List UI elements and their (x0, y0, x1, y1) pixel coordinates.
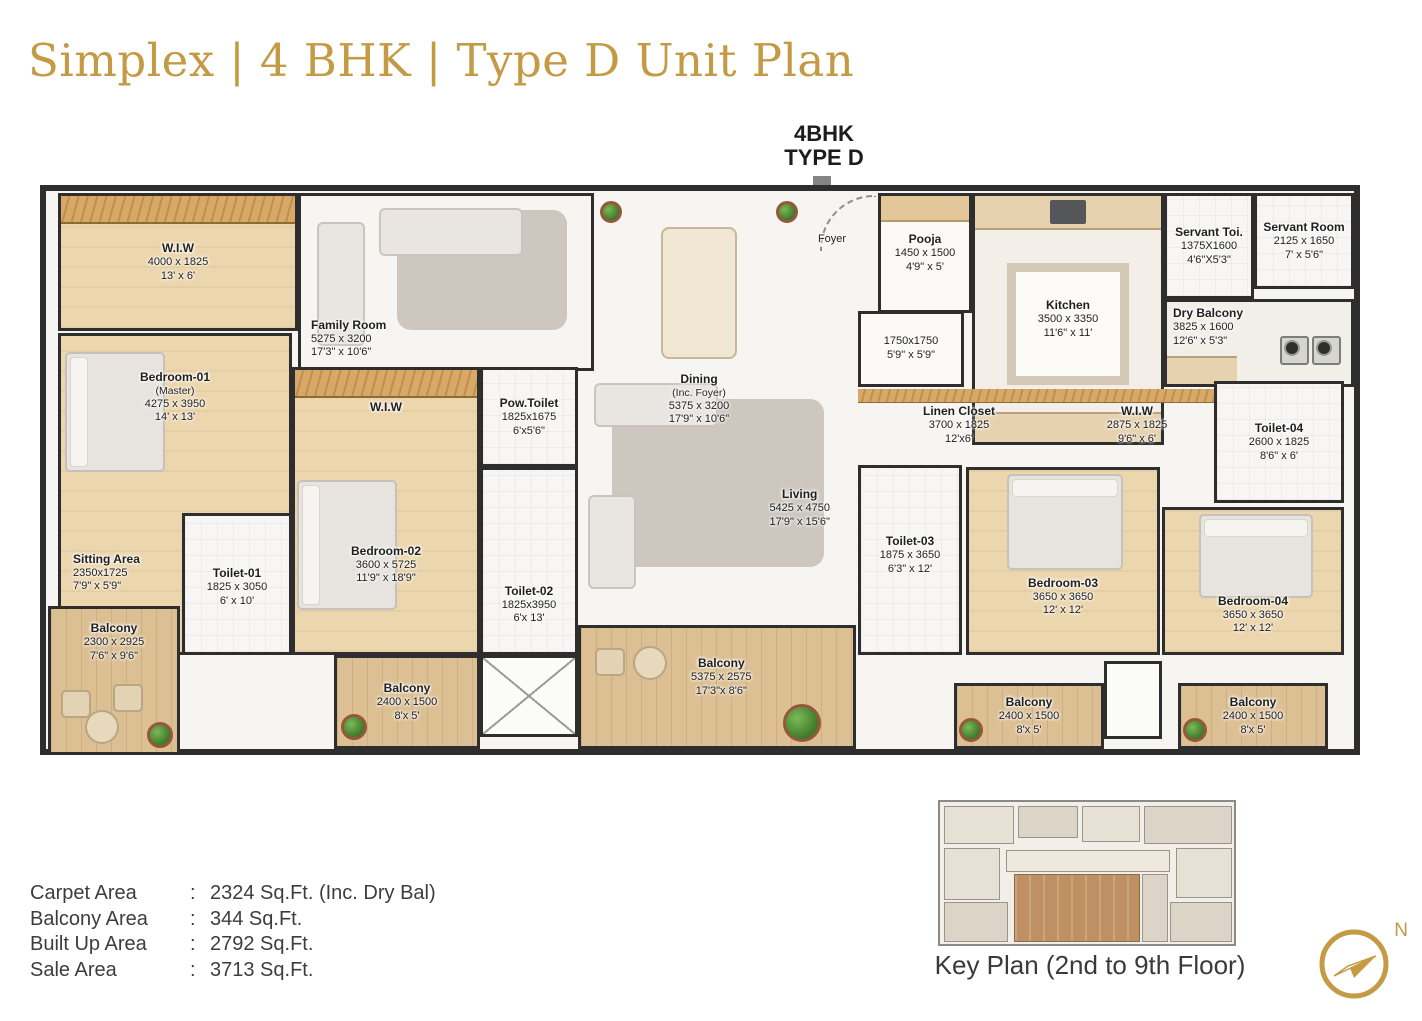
room-name: Dry Balcony (1173, 306, 1243, 321)
room-name: Bedroom-02 (351, 544, 421, 559)
room-name: Family Room (311, 318, 386, 333)
room-dim-mm: 2875 x 1825 (1107, 419, 1168, 433)
keyplan-section (1142, 874, 1168, 942)
room-dim-ft: 13' x 6' (161, 270, 195, 284)
room-foyer: Foyer (786, 193, 878, 287)
room-servant-toilet: Servant Toi. 1375X1600 4'6"X5'3" (1164, 193, 1254, 299)
plant-icon (783, 704, 821, 742)
room-dining: Dining (Inc. Foyer) 5375 x 3200 17'9" x … (594, 193, 804, 433)
keyplan-highlighted-unit (1014, 874, 1140, 942)
room-dim-ft: 12' x 12' (1043, 604, 1083, 618)
room-dim-ft: 17'9" x 10'6" (669, 413, 729, 427)
keyplan-corridor (1006, 850, 1170, 872)
room-dim-ft: 7'6" x 9'6" (90, 650, 138, 664)
room-name: Toilet-01 (213, 566, 261, 581)
room-dim-mm: 2400 x 1500 (999, 710, 1060, 724)
stove-icon (1050, 200, 1086, 224)
area-separator: : (190, 881, 210, 907)
room-dim-mm: 5275 x 3200 (311, 333, 372, 347)
room-bedroom-03: Bedroom-03 3650 x 3650 12' x 12' (966, 467, 1160, 655)
area-value: 2792 Sq.Ft. (210, 932, 313, 958)
room-balcony-master: Balcony 2300 x 2925 7'6" x 9'6" (48, 606, 180, 755)
sitting-area-label: Sitting Area 2350x1725 7'9" x 5'9" (73, 552, 140, 595)
area-wiw-right: W.I.W 2875 x 1825 9'6" x 6' (1060, 389, 1214, 461)
room-dim-mm: 3825 x 1600 (1173, 321, 1234, 335)
key-plan-thumbnail (938, 800, 1236, 946)
room-dim-ft: 5'9" x 5'9" (887, 349, 935, 363)
room-label: Servant Toi. 1375X1600 4'6"X5'3" (1175, 225, 1243, 268)
room-dim-mm: 5375 x 3200 (669, 400, 730, 414)
chair-icon (113, 684, 143, 712)
compass-north-label: N (1394, 920, 1408, 942)
area-linen-closet: Linen Closet 3700 x 1825 12'x6' (858, 389, 1060, 461)
keyplan-section (1176, 848, 1232, 898)
area-value: 3713 Sq.Ft. (210, 958, 313, 984)
keyplan-section (1144, 806, 1232, 844)
room-name: Balcony (91, 621, 138, 636)
room-dim-mm: 4275 x 3950 (145, 398, 206, 412)
room-name: Sitting Area (73, 552, 140, 567)
room-label: Toilet-01 1825 x 3050 6' x 10' (185, 566, 289, 609)
lift-shaft (1104, 661, 1162, 739)
unit-type-line1: 4BHK (742, 122, 906, 146)
room-name: Balcony (698, 656, 745, 671)
room-family: Family Room 5275 x 3200 17'3" x 10'6" (298, 193, 594, 371)
area-label: Balcony Area (30, 907, 190, 933)
room-label: Toilet-03 1875 x 3650 6'3" x 12' (861, 534, 959, 577)
room-name: Pooja (909, 232, 942, 247)
room-name: Bedroom-04 (1218, 594, 1288, 609)
area-row: Sale Area : 3713 Sq.Ft. (30, 958, 436, 984)
room-name: W.I.W (1121, 404, 1153, 419)
plant-icon (600, 201, 622, 223)
room-name: Pow.Toilet (500, 396, 559, 411)
room-dim-mm: 2300 x 2925 (84, 636, 145, 650)
room-label: Balcony 2300 x 2925 7'6" x 9'6" (51, 621, 177, 664)
floor-plan-page: Simplex | 4 BHK | Type D Unit Plan 4BHK … (0, 0, 1422, 1021)
room-name: Balcony (384, 681, 431, 696)
keyplan-section (1018, 806, 1078, 838)
area-label: Built Up Area (30, 932, 190, 958)
room-label: Servant Room 2125 x 1650 7' x 5'6" (1263, 220, 1344, 263)
room-name: W.I.W (370, 400, 402, 415)
room-balcony-2: Balcony 2400 x 1500 8'x 5' (334, 655, 480, 749)
dining-table-icon (661, 227, 737, 359)
table-icon (633, 646, 667, 680)
compass: N (1314, 920, 1414, 1010)
room-label: Living 5425 x 4750 17'9" x 15'6" (769, 487, 830, 530)
room-name: Toilet-04 (1255, 421, 1303, 436)
room-dim-ft: 12'x6' (945, 433, 973, 447)
plant-icon (776, 201, 798, 223)
room-name: Living (782, 487, 817, 502)
room-label: Foyer (818, 233, 846, 247)
keyplan-section (1170, 902, 1232, 942)
room-dim-ft: 8'6" x 6' (1260, 450, 1298, 464)
room-dim-mm: 2600 x 1825 (1249, 436, 1310, 450)
plant-icon (1183, 718, 1207, 742)
room-balcony-3: Balcony 2400 x 1500 8'x 5' (954, 683, 1104, 749)
room-name: Balcony (1230, 695, 1277, 710)
room-name: Linen Closet (923, 404, 995, 419)
room-pow-toilet: Pow.Toilet 1825x1675 6'x5'6" (480, 367, 578, 467)
room-label: Balcony 5375 x 2575 17'3"x 8'6" (691, 656, 752, 699)
room-dim-mm: 3500 x 3350 (1038, 313, 1099, 327)
room-name: Bedroom-01 (140, 370, 210, 385)
room-dim-ft: 12' x 12' (1233, 622, 1273, 636)
unit-floor-plan: W.I.W 4000 x 1825 13' x 6' Family Room 5… (40, 185, 1360, 755)
room-bedroom-04: Bedroom-04 3650 x 3650 12' x 12' (1162, 507, 1344, 655)
room-dim-mm: 5375 x 2575 (691, 671, 752, 685)
key-plan-caption: Key Plan (2nd to 9th Floor) (905, 950, 1275, 981)
room-label: Balcony 2400 x 1500 8'x 5' (999, 695, 1060, 738)
room-dim-ft: 17'3"x 8'6" (696, 685, 747, 699)
room-label: Linen Closet 3700 x 1825 12'x6' (923, 404, 995, 447)
room-label: Dining (Inc. Foyer) 5375 x 3200 17'9" x … (594, 372, 804, 427)
plant-icon (147, 722, 173, 748)
room-dim-mm: 1825 x 3050 (207, 581, 268, 595)
washing-machine-icon (1312, 336, 1341, 365)
keyplan-section (1082, 806, 1140, 842)
room-label: Dry Balcony 3825 x 1600 12'6" x 5'3" (1173, 306, 1243, 349)
room-name: Servant Room (1263, 220, 1344, 235)
bed-icon (1199, 514, 1313, 598)
room-dim-mm: 3700 x 1825 (929, 419, 990, 433)
room-wiw-master: W.I.W 4000 x 1825 13' x 6' (58, 193, 298, 331)
room-label: W.I.W 4000 x 1825 13' x 6' (148, 241, 209, 284)
room-toilet-03: Toilet-03 1875 x 3650 6'3" x 12' (858, 465, 962, 655)
room-dim-ft: 17'9" x 15'6" (770, 516, 830, 530)
room-name: Kitchen (1046, 298, 1090, 313)
room-label: Kitchen 3500 x 3350 11'6" x 11' (1038, 298, 1099, 341)
room-dim-mm: 3650 x 3650 (1033, 591, 1094, 605)
unit-type-callout: 4BHK TYPE D (742, 122, 906, 170)
room-toilet-04: Toilet-04 2600 x 1825 8'6" x 6' (1214, 381, 1344, 503)
room-dim-mm: 4000 x 1825 (148, 256, 209, 270)
room-name: Toilet-03 (886, 534, 934, 549)
room-dim-mm: 1450 x 1500 (895, 247, 956, 261)
room-label: Toilet-04 2600 x 1825 8'6" x 6' (1249, 421, 1310, 464)
unit-type-line2: TYPE D (742, 146, 906, 170)
room-label: Pow.Toilet 1825x1675 6'x5'6" (500, 396, 559, 439)
area-value: 344 Sq.Ft. (210, 907, 302, 933)
sofa-icon (588, 495, 636, 589)
room-name: Balcony (1006, 695, 1053, 710)
keyplan-section (944, 902, 1008, 942)
room-dim-ft: 6'3" x 12' (888, 563, 932, 577)
room-bedroom-02: W.I.W Bedroom-02 3600 x 5725 11'9" x 18'… (292, 367, 480, 655)
room-label: 1750x1750 5'9" x 5'9" (884, 335, 938, 363)
room-dim-ft: 6'x5'6" (513, 425, 545, 439)
room-utility-1750: 1750x1750 5'9" x 5'9" (858, 311, 964, 387)
room-dim-mm: 1825x3950 (502, 599, 556, 613)
area-row: Built Up Area : 2792 Sq.Ft. (30, 932, 436, 958)
room-name: Bedroom-03 (1028, 576, 1098, 591)
room-dry-balcony: Dry Balcony 3825 x 1600 12'6" x 5'3" (1164, 299, 1354, 387)
room-label: Toilet-02 1825x3950 6'x 13' (483, 584, 575, 627)
room-dim-mm: 3600 x 5725 (356, 559, 417, 573)
room-dim-mm: 2350x1725 (73, 567, 127, 581)
page-title: Simplex | 4 BHK | Type D Unit Plan (28, 34, 854, 87)
room-dim-ft: 8'x 5' (1017, 724, 1042, 738)
room-toilet-01: Toilet-01 1825 x 3050 6' x 10' (182, 513, 292, 655)
room-dim-ft: 4'6"X5'3" (1187, 254, 1231, 268)
area-separator: : (190, 907, 210, 933)
area-label: Carpet Area (30, 881, 190, 907)
room-label: W.I.W 2875 x 1825 9'6" x 6' (1107, 404, 1168, 447)
room-name: Servant Toi. (1175, 225, 1243, 240)
room-name: W.I.W (162, 241, 194, 256)
plant-icon (341, 714, 367, 740)
room-dim-mm: 1750x1750 (884, 335, 938, 349)
room-dim-mm: 2400 x 1500 (1223, 710, 1284, 724)
room-dim-ft: 6' x 10' (220, 595, 254, 609)
area-row: Carpet Area : 2324 Sq.Ft. (Inc. Dry Bal) (30, 881, 436, 907)
plant-icon (959, 718, 983, 742)
room-dim-ft: 4'9" x 5' (906, 261, 944, 275)
area-label: Sale Area (30, 958, 190, 984)
room-dim-mm: 2125 x 1650 (1274, 235, 1335, 249)
table-icon (85, 710, 119, 744)
room-balcony-4: Balcony 2400 x 1500 8'x 5' (1178, 683, 1328, 749)
room-dim-ft: 11'6" x 11' (1044, 327, 1093, 341)
room-label: Balcony 2400 x 1500 8'x 5' (377, 681, 438, 724)
area-separator: : (190, 932, 210, 958)
lift-shaft (480, 655, 578, 737)
keyplan-section (944, 806, 1014, 844)
room-label: Balcony 2400 x 1500 8'x 5' (1223, 695, 1284, 738)
room-subname: (Master) (155, 385, 194, 398)
washing-machine-icon (1280, 336, 1309, 365)
room-pooja: Pooja 1450 x 1500 4'9" x 5' (878, 193, 972, 313)
room-dim-mm: 1375X1600 (1181, 240, 1237, 254)
room-dim-ft: 12'6" x 5'3" (1173, 335, 1227, 349)
room-label: Pooja 1450 x 1500 4'9" x 5' (895, 232, 956, 275)
room-name: Foyer (818, 233, 846, 247)
room-dim-ft: 8'x 5' (395, 710, 420, 724)
room-label: Bedroom-01 (Master) 4275 x 3950 14' x 13… (140, 370, 210, 425)
room-dim-ft: 7'9" x 5'9" (73, 580, 121, 594)
room-dim-ft: 9'6" x 6' (1118, 433, 1156, 447)
area-separator: : (190, 958, 210, 984)
sofa-icon (379, 208, 523, 256)
room-label: Family Room 5275 x 3200 17'3" x 10'6" (311, 318, 386, 361)
wiw-label: W.I.W (370, 400, 402, 415)
room-label: Bedroom-02 3600 x 5725 11'9" x 18'9" (351, 544, 421, 587)
compass-icon (1314, 920, 1398, 1004)
room-servant-room: Servant Room 2125 x 1650 7' x 5'6" (1254, 193, 1354, 289)
room-name: Dining (680, 372, 717, 387)
room-dim-mm: 1825x1675 (502, 411, 556, 425)
room-dim-ft: 11'9" x 18'9" (356, 572, 416, 586)
keyplan-section (944, 848, 1000, 900)
room-balcony-center: Balcony 5375 x 2575 17'3"x 8'6" (578, 625, 856, 749)
room-name: Toilet-02 (505, 584, 553, 599)
area-value: 2324 Sq.Ft. (Inc. Dry Bal) (210, 881, 436, 907)
chair-icon (595, 648, 625, 676)
area-row: Balcony Area : 344 Sq.Ft. (30, 907, 436, 933)
room-label: Bedroom-04 3650 x 3650 12' x 12' (1165, 594, 1341, 637)
room-dim-mm: 3650 x 3650 (1223, 609, 1284, 623)
room-dim-ft: 7' x 5'6" (1285, 249, 1323, 263)
room-dim-mm: 2400 x 1500 (377, 696, 438, 710)
room-label: Bedroom-03 3650 x 3650 12' x 12' (969, 576, 1157, 619)
room-dim-ft: 8'x 5' (1241, 724, 1266, 738)
area-statistics: Carpet Area : 2324 Sq.Ft. (Inc. Dry Bal)… (30, 881, 436, 983)
room-dim-mm: 1875 x 3650 (880, 549, 941, 563)
room-dim-mm: 5425 x 4750 (769, 502, 830, 516)
room-subname: (Inc. Foyer) (672, 387, 726, 400)
room-dim-ft: 14' x 13' (155, 411, 195, 425)
bed-icon (1007, 474, 1123, 570)
room-toilet-02: Toilet-02 1825x3950 6'x 13' (480, 467, 578, 655)
room-dim-ft: 6'x 13' (513, 612, 544, 626)
chair-icon (61, 690, 91, 718)
room-dim-ft: 17'3" x 10'6" (311, 346, 371, 360)
